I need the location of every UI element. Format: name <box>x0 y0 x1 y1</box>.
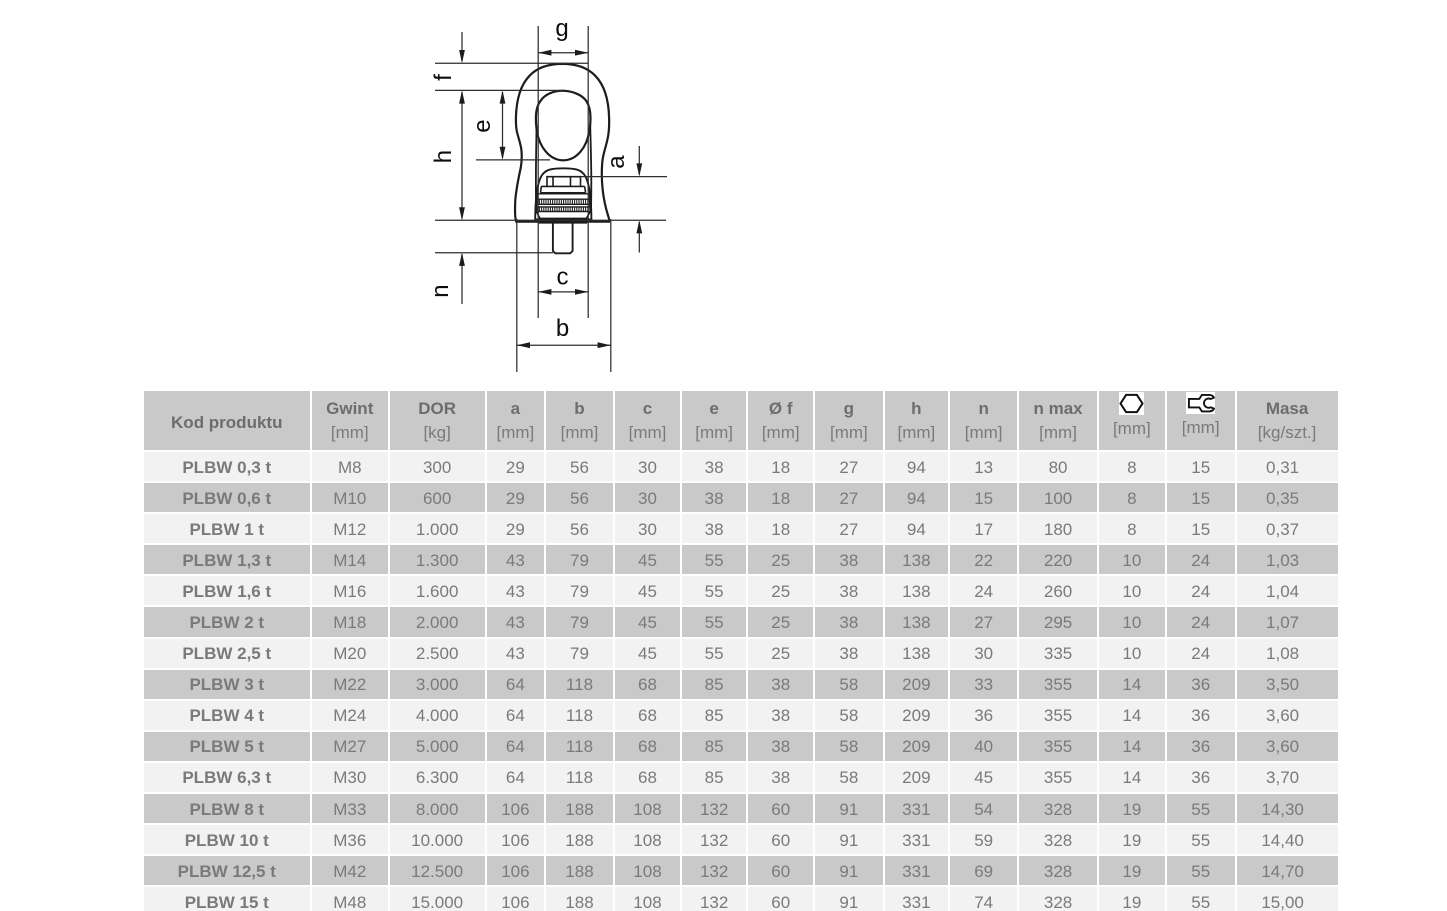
svg-text:b: b <box>556 315 569 342</box>
svg-text:a: a <box>603 155 630 169</box>
svg-text:f: f <box>430 74 457 81</box>
svg-text:h: h <box>430 150 457 163</box>
svg-text:e: e <box>469 119 496 132</box>
svg-text:n: n <box>430 284 454 297</box>
svg-text:g: g <box>555 15 568 42</box>
svg-text:c: c <box>557 264 569 291</box>
